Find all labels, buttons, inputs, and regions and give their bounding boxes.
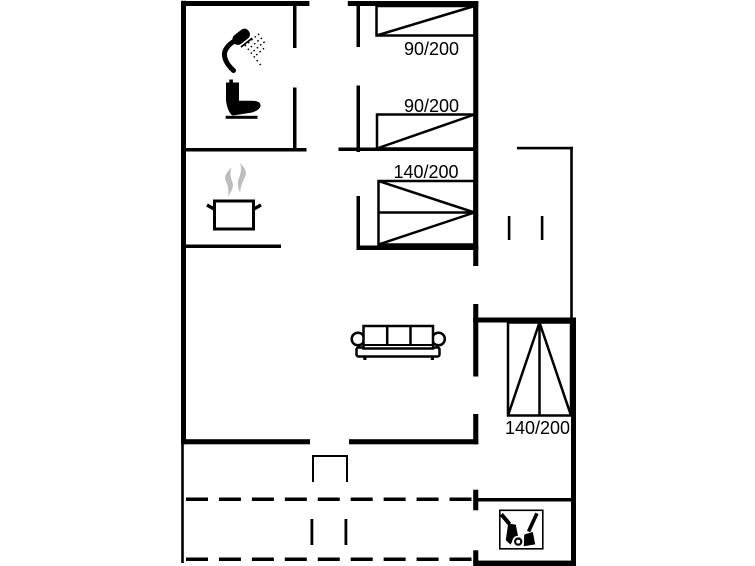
svg-text:140/200: 140/200 [505,418,570,438]
svg-text:140/200: 140/200 [393,162,458,182]
svg-text:90/200: 90/200 [404,96,459,116]
svg-text:90/200: 90/200 [404,39,459,59]
